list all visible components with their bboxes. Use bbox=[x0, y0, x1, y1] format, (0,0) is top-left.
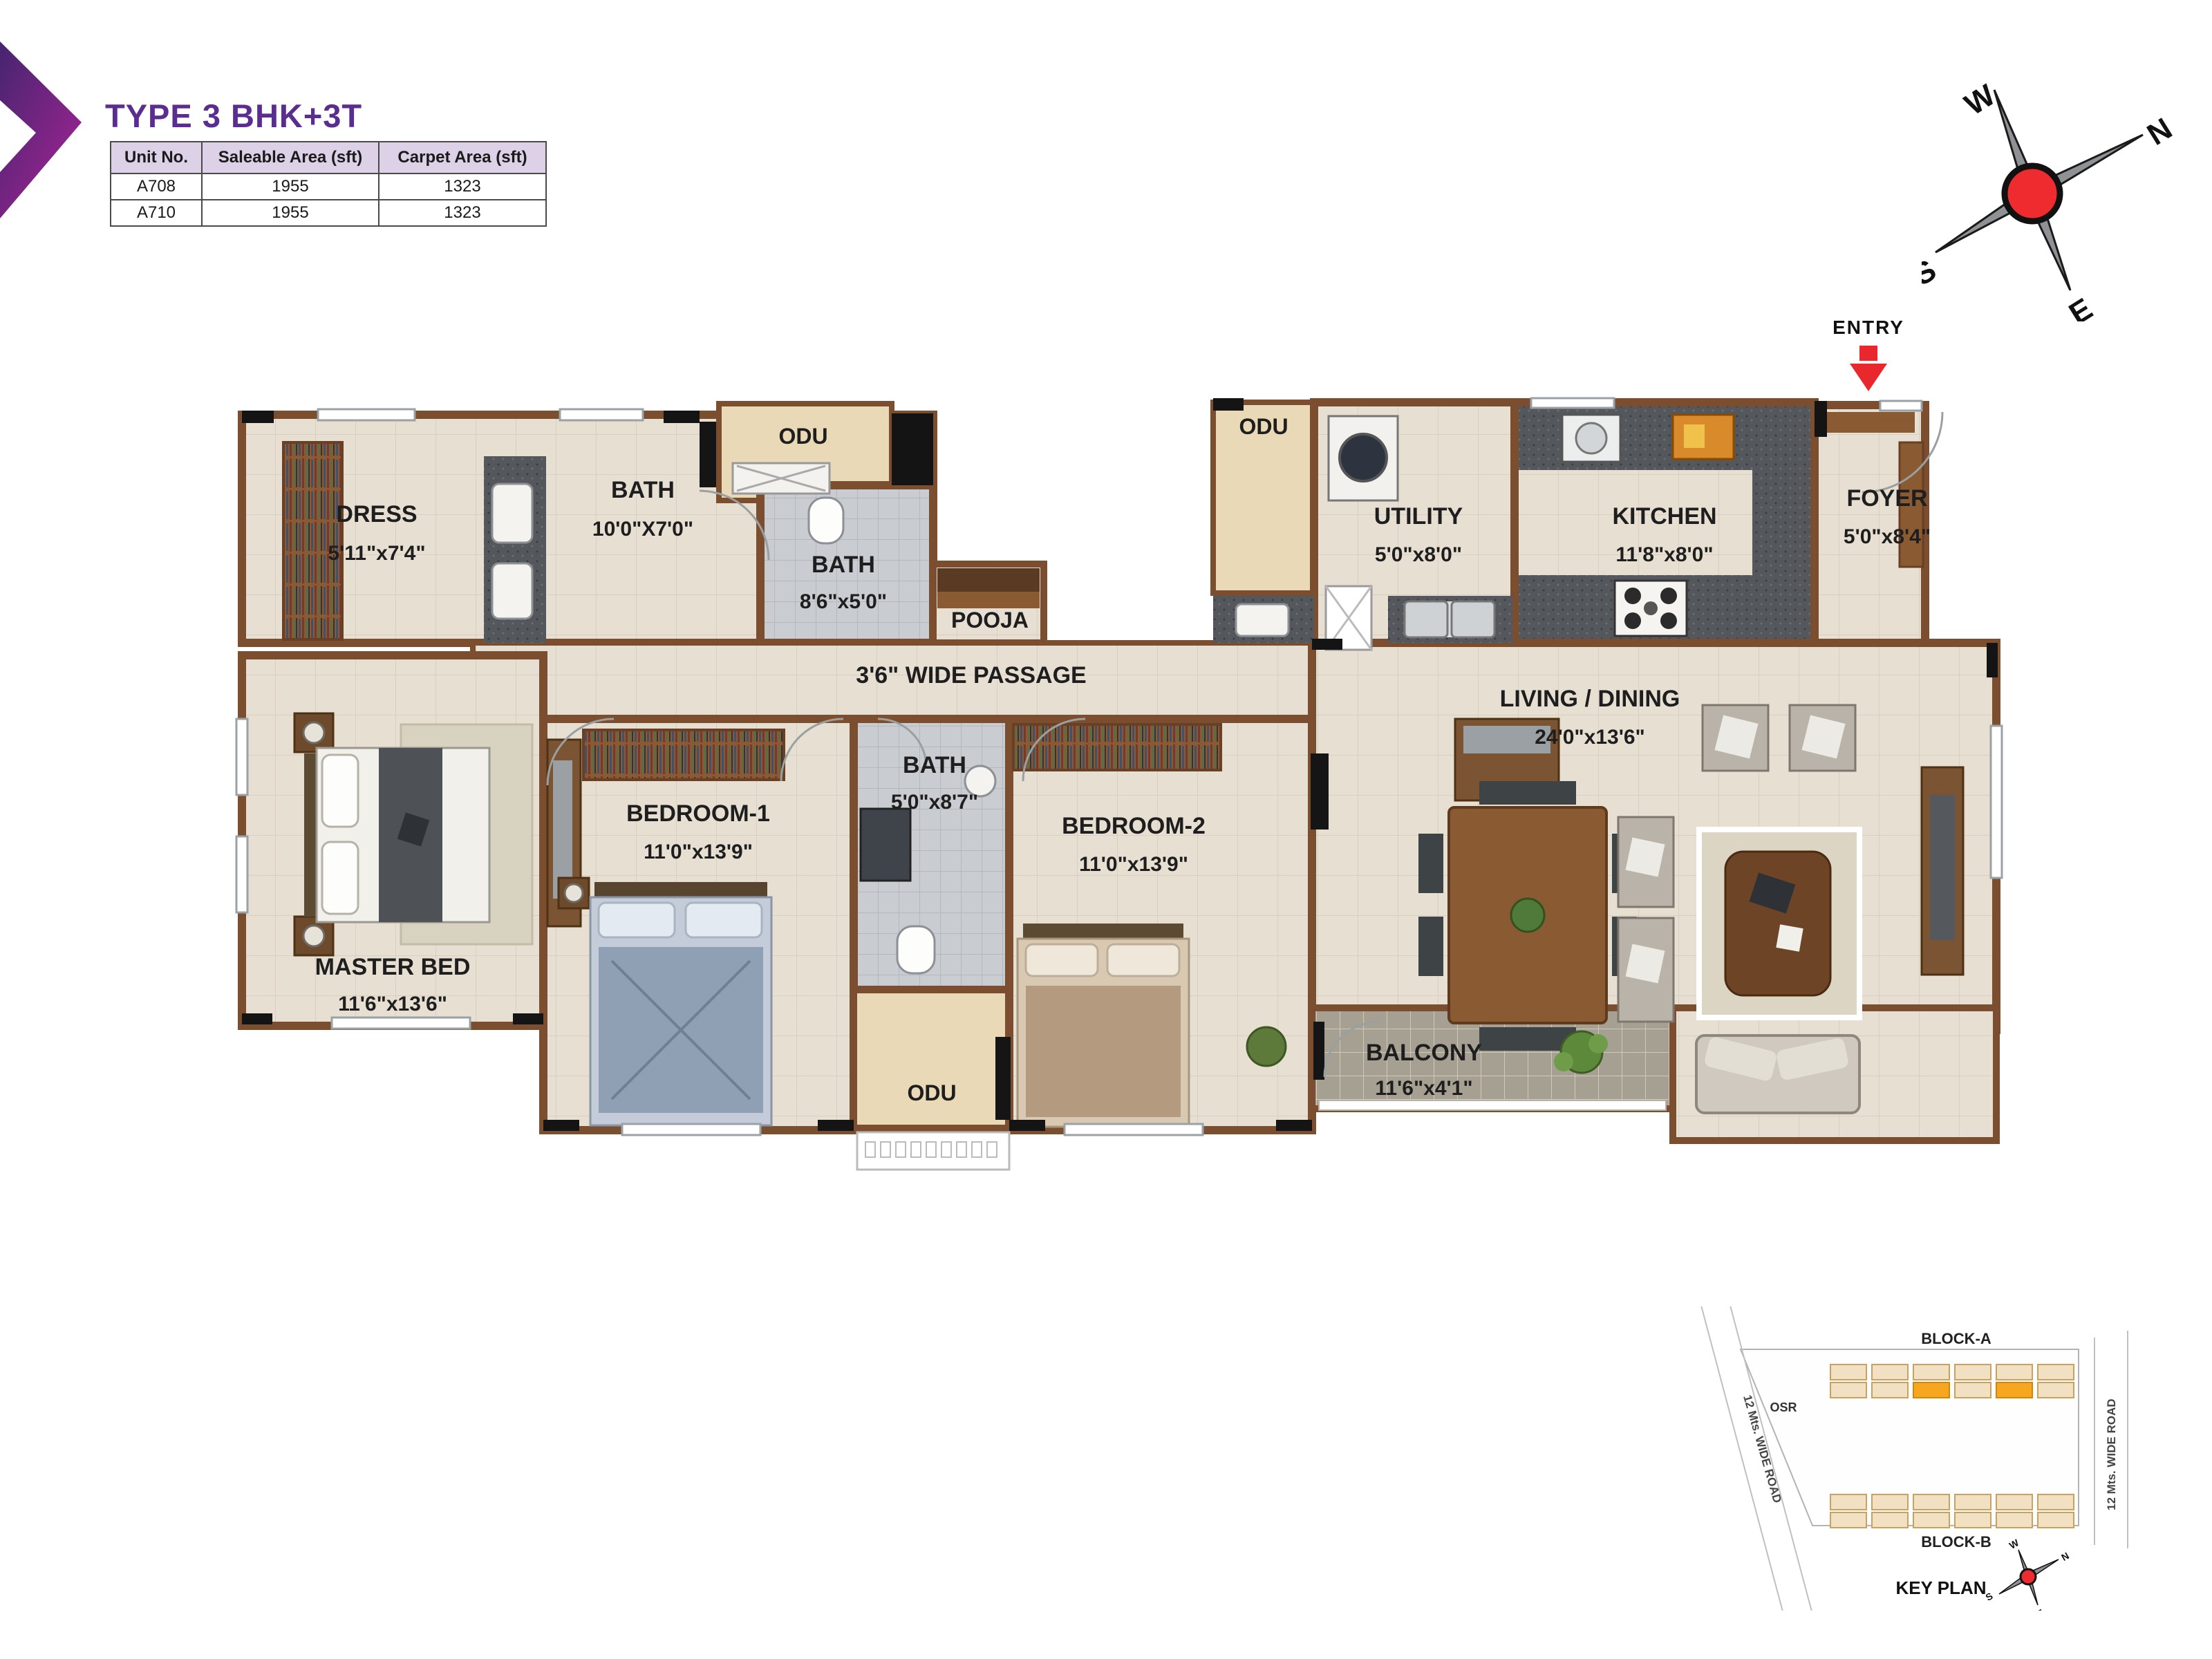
dims-master: 11'6"x13'6" bbox=[338, 993, 447, 1015]
cell-sale: 1955 bbox=[202, 200, 379, 226]
label-bath2: BATH bbox=[812, 552, 875, 578]
lamp-icon bbox=[303, 722, 324, 743]
label-bedroom2: BEDROOM-2 bbox=[1062, 813, 1206, 839]
col-saleable-area: Saleable Area (sft) bbox=[202, 142, 379, 174]
table-row: A710 1955 1323 bbox=[111, 200, 546, 226]
pillow bbox=[686, 903, 762, 937]
osr-label: OSR bbox=[1770, 1400, 1797, 1414]
label-living: LIVING / DINING bbox=[1500, 686, 1680, 712]
dims-living: 24'0"x13'6" bbox=[1535, 726, 1645, 749]
label-foyer: FOYER bbox=[1846, 485, 1927, 512]
label-passage: 3'6" WIDE PASSAGE bbox=[856, 662, 1086, 688]
compass-label-s: S bbox=[1922, 253, 1942, 292]
label-utility: UTILITY bbox=[1374, 503, 1463, 529]
kp-compass-n: N bbox=[2059, 1550, 2071, 1563]
area-table: Unit No. Saleable Area (sft) Carpet Area… bbox=[110, 141, 547, 227]
compass-label-w: W bbox=[1959, 79, 2002, 122]
highlighted-unit bbox=[1913, 1382, 1949, 1398]
label-pooja: POOJA bbox=[951, 608, 1029, 632]
col-unit-no: Unit No. bbox=[111, 142, 202, 174]
dining-chair bbox=[1479, 781, 1576, 805]
window bbox=[236, 719, 247, 795]
dining-chair bbox=[1418, 917, 1443, 976]
keyplan-compass-icon: W N S E bbox=[1983, 1537, 2070, 1611]
cell-carpet: 1323 bbox=[379, 200, 546, 226]
headboard bbox=[594, 882, 767, 897]
lamp-icon bbox=[303, 926, 324, 946]
door-gap bbox=[995, 1037, 1011, 1120]
plant-icon bbox=[1247, 1027, 1286, 1066]
headboard bbox=[1023, 924, 1183, 939]
compass-icon: W N S E bbox=[1922, 79, 2198, 321]
label-bath1: BATH bbox=[611, 477, 675, 503]
pillow bbox=[1107, 944, 1179, 976]
compass-center bbox=[2005, 166, 2060, 221]
room-odu-bottom bbox=[854, 990, 1013, 1128]
label-kitchen: KITCHEN bbox=[1612, 503, 1716, 529]
duvet bbox=[1026, 986, 1181, 1117]
door-gap bbox=[1313, 1022, 1324, 1080]
cell-sale: 1955 bbox=[202, 174, 379, 200]
balcony-sill bbox=[1319, 1100, 1666, 1110]
key-plan-title: KEY PLAN bbox=[1896, 1577, 1987, 1598]
highlighted-unit bbox=[1996, 1382, 2032, 1398]
dims-bath2: 8'6"x5'0" bbox=[800, 590, 887, 613]
pooja-cabinet bbox=[937, 568, 1040, 592]
coffee-table bbox=[1725, 852, 1830, 995]
entry-arrow-icon bbox=[1859, 346, 1877, 361]
block-a-label: BLOCK-A bbox=[1921, 1330, 1991, 1347]
window bbox=[1991, 726, 2002, 878]
sink-icon bbox=[492, 563, 532, 619]
pillow bbox=[322, 842, 358, 914]
label-balcony: BALCONY bbox=[1366, 1040, 1482, 1066]
centerpiece-plant bbox=[1511, 899, 1544, 932]
pillow bbox=[599, 903, 675, 937]
dims-bedroom2: 11'0"x13'9" bbox=[1079, 853, 1188, 876]
sink-bowl bbox=[1405, 601, 1447, 637]
cell-unit: A710 bbox=[111, 200, 202, 226]
dims-dress: 5'11"x7'4" bbox=[328, 542, 425, 565]
entry-label: ENTRY bbox=[1817, 317, 1920, 339]
lamp-icon bbox=[565, 884, 583, 902]
col-carpet-area: Carpet Area (sft) bbox=[379, 142, 546, 174]
floorplan-drawing: DRESS 5'11"x7'4" BATH 10'0"X7'0" ODU BAT… bbox=[235, 394, 2005, 1196]
dims-balcony: 11'6"x4'1" bbox=[1375, 1077, 1472, 1100]
dining-chair bbox=[1418, 834, 1443, 893]
table-header-row: Unit No. Saleable Area (sft) Carpet Area… bbox=[111, 142, 546, 174]
kp-compass-w: W bbox=[2007, 1537, 2021, 1551]
label-bath3: BATH bbox=[903, 752, 966, 778]
door-gap bbox=[1311, 753, 1329, 829]
dims-foyer: 5'0"x8'4" bbox=[1844, 525, 1931, 548]
window bbox=[332, 1018, 470, 1029]
wardrobe-bedroom2 bbox=[1013, 724, 1221, 770]
cell-unit: A708 bbox=[111, 174, 202, 200]
kp-compass-s: S bbox=[1983, 1590, 1994, 1603]
key-plan: 12 Mts. WIDE ROAD 12 Mts. WIDE ROAD OSR … bbox=[1680, 1306, 2184, 1611]
pillow bbox=[322, 755, 358, 827]
shower-icon bbox=[861, 809, 910, 881]
foyer-shelf bbox=[1825, 412, 1915, 433]
wardrobe-bedroom1 bbox=[583, 730, 784, 780]
window bbox=[560, 409, 643, 420]
window bbox=[622, 1124, 760, 1135]
basin-icon bbox=[1236, 604, 1288, 636]
entry-marker: ENTRY bbox=[1817, 317, 1920, 391]
window bbox=[1065, 1124, 1203, 1135]
pillow bbox=[1026, 944, 1098, 976]
window bbox=[1531, 398, 1614, 408]
block-b-label: BLOCK-B bbox=[1921, 1533, 1991, 1550]
window bbox=[236, 836, 247, 912]
kitchen-counter-right bbox=[1752, 406, 1810, 639]
sink-bowl bbox=[1452, 601, 1494, 637]
floorplan-page: TYPE 3 BHK+3T Unit No. Saleable Area (sf… bbox=[0, 0, 2212, 1659]
toilet-icon bbox=[897, 926, 935, 973]
dims-bath3: 5'0"x8'7" bbox=[891, 791, 978, 814]
sink-icon bbox=[492, 484, 532, 543]
page-title: TYPE 3 BHK+3T bbox=[105, 97, 362, 135]
label-master: MASTER BED bbox=[315, 954, 471, 980]
label-bedroom1: BEDROOM-1 bbox=[626, 800, 770, 827]
dims-bath1: 10'0"X7'0" bbox=[592, 518, 693, 541]
dims-utility: 5'0"x8'0" bbox=[1375, 543, 1462, 566]
dims-bedroom1: 11'0"x13'9" bbox=[644, 841, 753, 863]
headboard bbox=[304, 753, 317, 917]
compass-label-n: N bbox=[2141, 112, 2178, 152]
brand-chevron-icon bbox=[0, 39, 83, 221]
label-odu-right: ODU bbox=[1239, 414, 1288, 439]
cell-carpet: 1323 bbox=[379, 174, 546, 200]
road-right-label: 12 Mts. WIDE ROAD bbox=[2105, 1398, 2118, 1510]
dims-kitchen: 11'8"x8'0" bbox=[1615, 543, 1713, 566]
label-dress: DRESS bbox=[336, 501, 417, 527]
table-row: A708 1955 1323 bbox=[111, 174, 546, 200]
label-odu-top: ODU bbox=[778, 424, 827, 449]
wardrobe-dress bbox=[283, 442, 342, 639]
entry-opening bbox=[1880, 401, 1922, 411]
label-odu-bottom: ODU bbox=[907, 1080, 956, 1105]
kp-compass-e: E bbox=[2034, 1606, 2045, 1611]
door-gap bbox=[700, 422, 716, 487]
toilet-icon bbox=[809, 498, 843, 543]
compass-label-e: E bbox=[2063, 292, 2099, 321]
window bbox=[318, 409, 415, 420]
